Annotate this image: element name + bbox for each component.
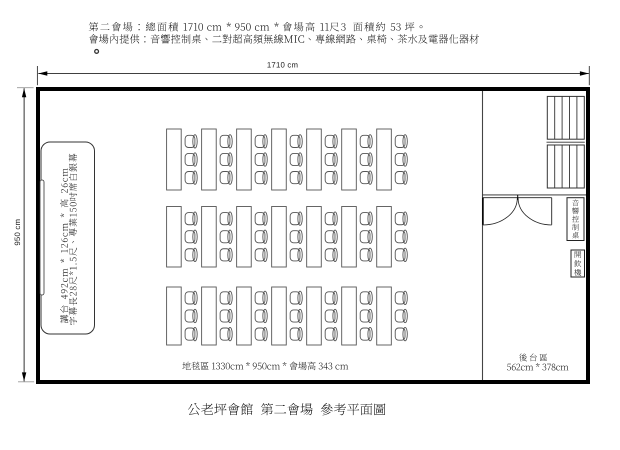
svg-text:1710 cm: 1710 cm [267, 61, 298, 70]
svg-text:950 cm: 950 cm [13, 219, 22, 246]
